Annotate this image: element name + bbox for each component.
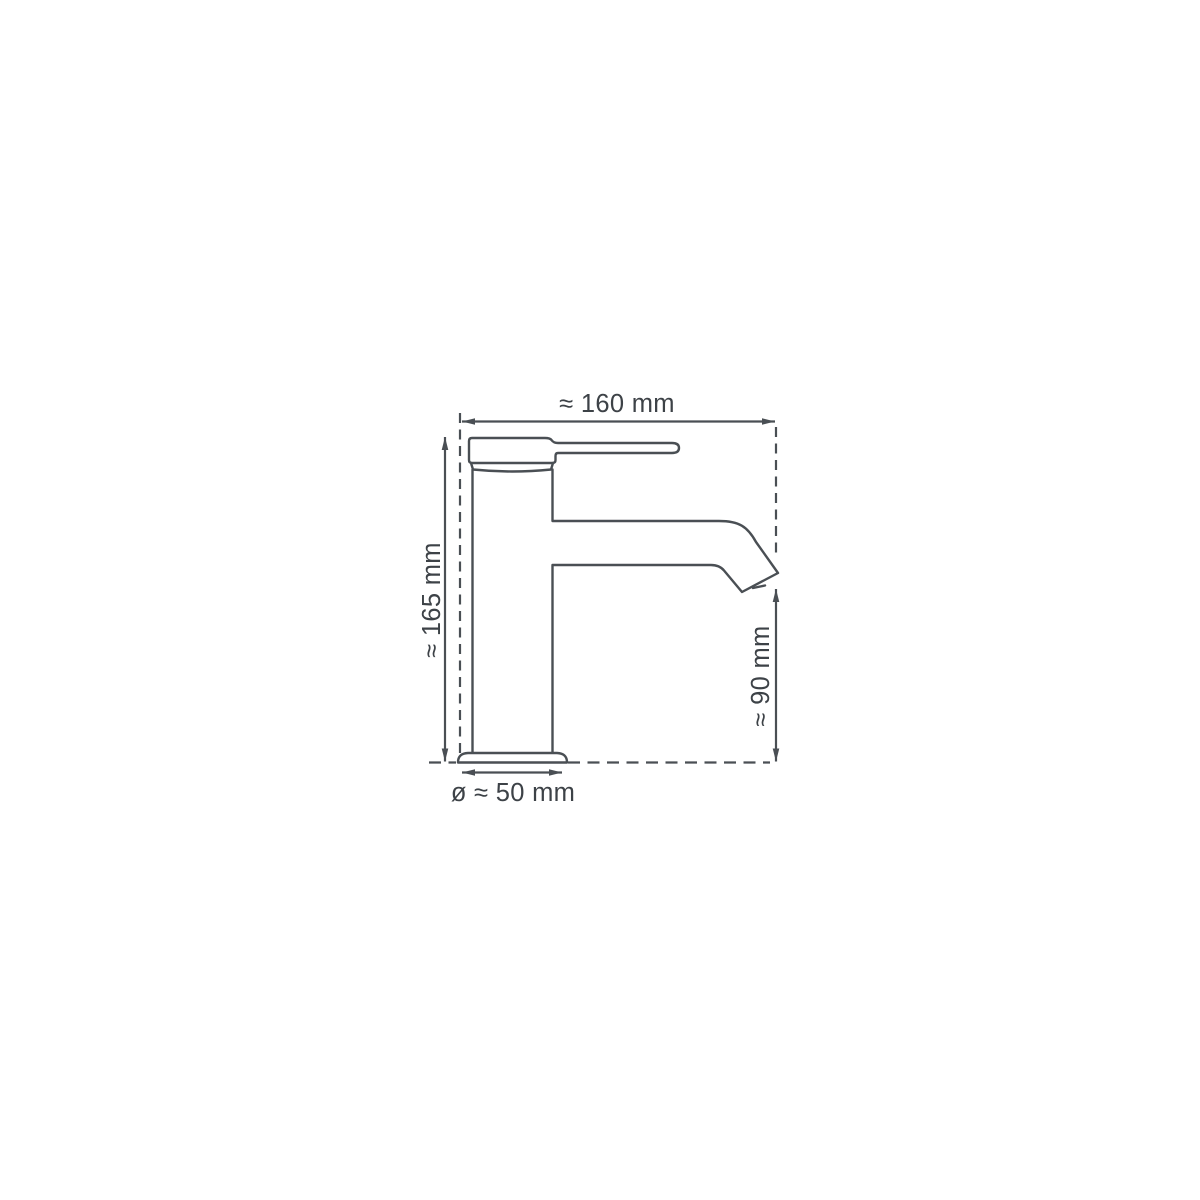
extension-lines xyxy=(429,413,776,763)
faucet-outline xyxy=(458,438,778,763)
dimension-lines xyxy=(445,422,776,773)
faucet-neck-ring xyxy=(471,463,553,472)
dim-label-overall-width: ≈ 160 mm xyxy=(559,390,675,418)
technical-drawing-canvas: ≈ 160 mm ≈ 165 mm ≈ 90 mm ø ≈ 50 mm xyxy=(0,0,1200,1200)
faucet-base-plate xyxy=(458,753,567,763)
dim-label-overall-height: ≈ 165 mm xyxy=(418,542,446,658)
dim-label-base-diameter: ø ≈ 50 mm xyxy=(451,779,575,807)
faucet-handle-lever xyxy=(469,438,679,463)
dim-label-spout-height: ≈ 90 mm xyxy=(747,625,775,726)
faucet-body-and-spout xyxy=(553,470,779,753)
faucet-dimension-diagram: ≈ 160 mm ≈ 165 mm ≈ 90 mm ø ≈ 50 mm xyxy=(0,0,1200,1200)
